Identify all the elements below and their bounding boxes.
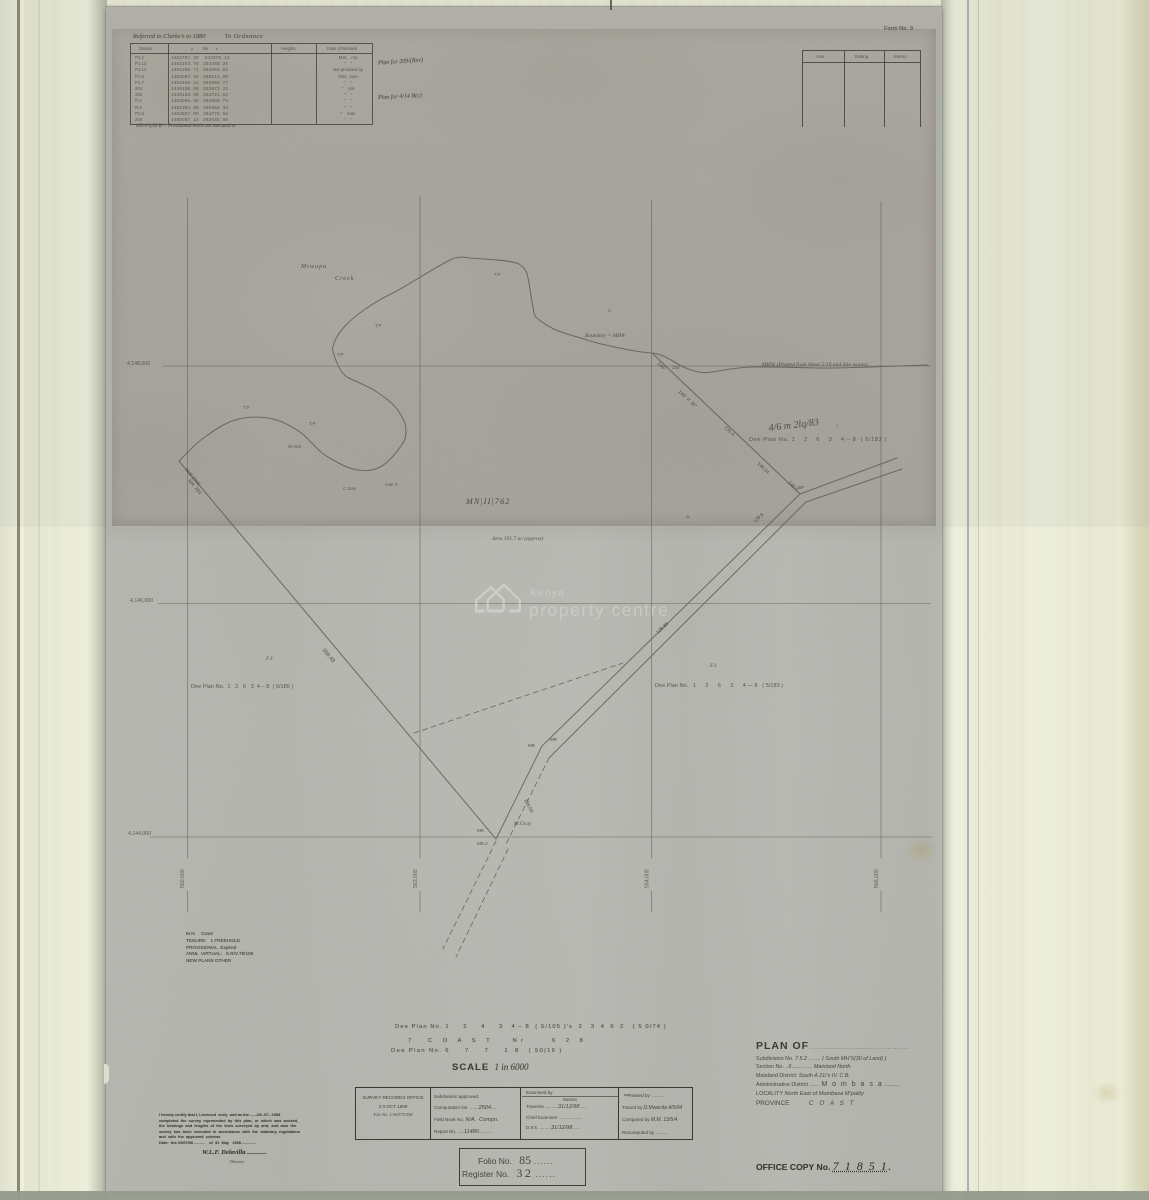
svg-text:F.J.: F.J. <box>265 656 274 662</box>
svg-text:T.P: T.P <box>494 272 501 277</box>
svg-text:Creek: Creek <box>335 275 355 282</box>
svg-text:560,000: 560,000 <box>180 869 186 888</box>
svg-text:140: 140 <box>672 365 680 370</box>
svg-text:4,146,000: 4,146,000 <box>130 598 153 604</box>
svg-text:property centre: property centre <box>529 600 669 620</box>
svg-text:C mas: C mas <box>343 486 357 491</box>
svg-text:Dee Plan No. 1 2 6: Dee Plan No. 1 2 6 3 4 — 8 ( 5/183 ) <box>655 683 783 689</box>
svg-text:Dee Plan No. 1 2 6 3 4: Dee Plan No. 1 2 6 3 4 – 8 ( 5/185 ) <box>191 684 293 690</box>
svg-text:MR.2: MR.2 <box>477 841 488 846</box>
svg-text:T.P: T.P <box>337 352 344 357</box>
svg-text:+: + <box>836 423 839 428</box>
svg-text:T.P: T.P <box>375 323 382 328</box>
svg-text:T.P: T.P <box>309 421 316 426</box>
svg-text:564,000: 564,000 <box>645 869 651 888</box>
svg-text:Boundary = MHW: Boundary = MHW <box>585 333 626 339</box>
svg-text:4,144,000: 4,144,000 <box>128 831 151 837</box>
svg-text:MHW (Plotted from Sheet 5/18 a: MHW (Plotted from Sheet 5/18 and Site wo… <box>761 361 868 368</box>
svg-text:F.J.: F.J. <box>709 663 718 669</box>
svg-text:MR: MR <box>528 743 536 748</box>
svg-text:562,000: 562,000 <box>413 869 419 888</box>
svg-text:4,148,000: 4,148,000 <box>127 361 150 367</box>
svg-text:Dee Plan No. 1 2 6 3: Dee Plan No. 1 2 6 3 4 – 8 ( 5/183 ) <box>749 437 887 443</box>
svg-text:Area 191.7 ac (approx): Area 191.7 ac (approx) <box>491 535 543 542</box>
svg-text:SP: SP <box>798 485 804 490</box>
svg-text:MN|II|762: MN|II|762 <box>465 497 511 506</box>
svg-text:MR: MR <box>550 737 558 742</box>
svg-text:W end: W end <box>288 444 302 449</box>
svg-text:A: A <box>608 308 611 313</box>
svg-text:M.Gray: M.Gray <box>513 821 532 827</box>
svg-text:Mtwapa: Mtwapa <box>300 263 327 270</box>
svg-text:566,000: 566,000 <box>874 869 880 888</box>
svg-text:mile S: mile S <box>385 482 398 487</box>
svg-text:T.P: T.P <box>243 405 250 410</box>
svg-text:Kenya: Kenya <box>530 587 565 599</box>
svg-text:MR: MR <box>477 828 485 833</box>
